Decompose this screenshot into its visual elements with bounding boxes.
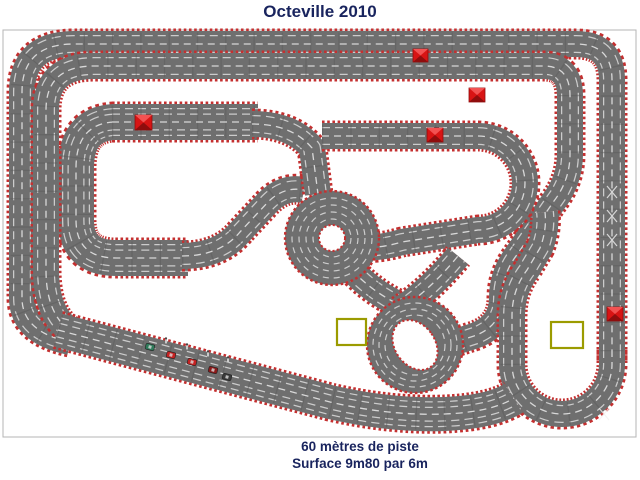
red-flag-marker (607, 307, 623, 321)
red-flag-marker (135, 115, 152, 130)
track-stats: 60 mètres de piste Surface 9m80 par 6m (80, 438, 640, 472)
post-top (207, 350, 209, 352)
red-flag-marker (427, 128, 443, 142)
curb-edge (319, 225, 345, 251)
track-length: 60 mètres de piste (80, 438, 640, 455)
track-map (0, 0, 640, 480)
yellow-zone-marker (337, 319, 366, 345)
red-flag-marker (413, 49, 428, 62)
post (207, 352, 209, 357)
red-flag-marker (469, 88, 485, 102)
post-top (165, 337, 167, 339)
marshal-post (165, 337, 167, 343)
center-spiral-loop (285, 191, 379, 285)
marshal-post (227, 356, 229, 362)
post (165, 339, 167, 344)
marshal-post (207, 350, 209, 356)
track-surface: Surface 9m80 par 6m (80, 455, 640, 472)
track-plan-page: Octeville 2010 60 mètres de piste Surfac… (0, 0, 640, 480)
post (227, 358, 229, 363)
donut-loop (367, 297, 463, 393)
post (186, 345, 188, 350)
marshal-post (186, 343, 188, 349)
post-top (227, 356, 229, 358)
post-top (186, 343, 188, 345)
yellow-zone-marker (551, 322, 583, 348)
